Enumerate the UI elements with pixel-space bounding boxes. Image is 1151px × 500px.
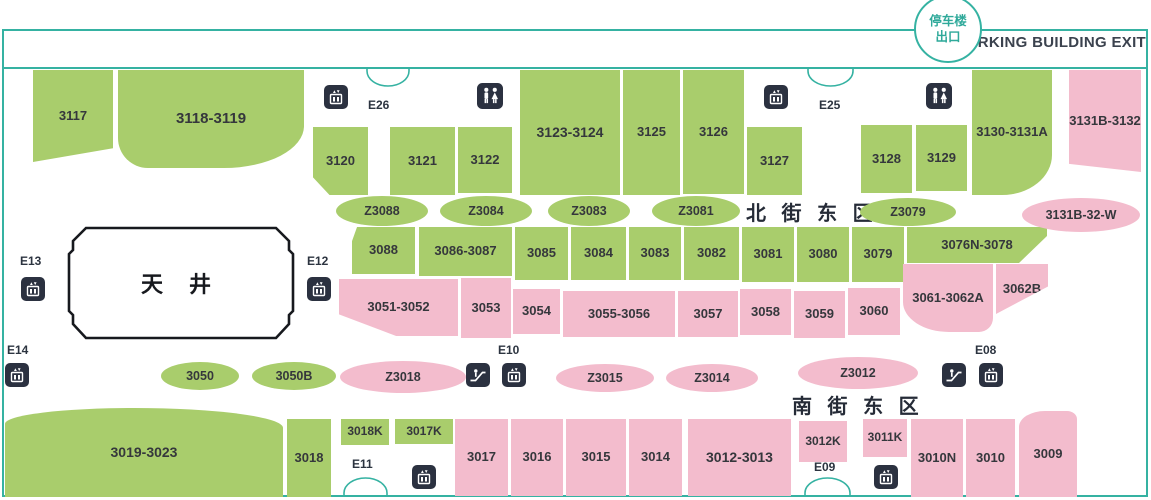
shop-3058: 3058 xyxy=(740,289,791,335)
exit-label-e10: E10 xyxy=(498,343,519,357)
district-label-north: 北 街 东 区 xyxy=(746,197,878,226)
shop-3126: 3126 xyxy=(683,70,744,194)
elevator-icon xyxy=(979,363,1003,387)
escalator-icon xyxy=(942,363,966,387)
wall-right xyxy=(1146,29,1148,497)
kiosk-z3014: Z3014 xyxy=(666,364,758,392)
exit-label-e13: E13 xyxy=(20,254,41,268)
shop-3061-3062a: 3061-3062A xyxy=(903,264,993,332)
shop-3130-3131a: 3130-3131A xyxy=(972,70,1052,195)
exit-label-e14: E14 xyxy=(7,343,28,357)
door-e26 xyxy=(366,67,410,88)
shop-3080: 3080 xyxy=(797,227,849,282)
kiosk-z3079: Z3079 xyxy=(860,198,956,226)
shop-3011k: 3011K xyxy=(863,419,907,457)
shop-3088: 3088 xyxy=(352,227,415,274)
kiosk-3050b: 3050B xyxy=(252,362,336,390)
shop-3127: 3127 xyxy=(747,127,802,195)
kiosk-z3081: Z3081 xyxy=(652,196,740,226)
shop-3016: 3016 xyxy=(511,419,563,496)
elevator-icon xyxy=(764,85,788,109)
shop-3014: 3014 xyxy=(629,419,682,496)
kiosk-z3015: Z3015 xyxy=(556,364,654,392)
wall-left xyxy=(2,29,4,497)
elevator-icon xyxy=(21,277,45,301)
shop-3079: 3079 xyxy=(852,227,904,282)
kiosk-3050: 3050 xyxy=(161,362,239,390)
shop-3017k: 3017K xyxy=(395,419,453,444)
shop-3082: 3082 xyxy=(684,227,739,280)
shop-3018k: 3018K xyxy=(341,419,389,445)
shop-3010n: 3010N xyxy=(911,419,963,497)
shop-3017: 3017 xyxy=(455,419,508,496)
shop-3120: 3120 xyxy=(313,127,368,195)
shop-3057: 3057 xyxy=(678,291,738,337)
elevator-icon xyxy=(5,363,29,387)
elevator-icon xyxy=(502,363,526,387)
exit-label-e25: E25 xyxy=(819,98,840,112)
shop-3131b-3132: 3131B-3132 xyxy=(1069,70,1141,172)
shop-3084: 3084 xyxy=(571,227,626,280)
door-e25 xyxy=(807,67,854,88)
shop-3012-3013: 3012-3013 xyxy=(688,419,791,496)
exit-label-e26: E26 xyxy=(368,98,389,112)
exit-label-e09: E09 xyxy=(814,460,835,474)
shop-3054: 3054 xyxy=(513,289,560,334)
elevator-icon xyxy=(324,85,348,109)
district-label-south: 南 街 东 区 xyxy=(792,390,924,419)
kiosk-3131b-32-w: 3131B-32-W xyxy=(1022,198,1140,232)
shop-3018: 3018 xyxy=(287,419,331,497)
shop-3060: 3060 xyxy=(848,288,900,335)
atrium-label: 天 井 xyxy=(70,227,292,339)
exit-label-e11: E11 xyxy=(352,457,373,471)
shop-3012k: 3012K xyxy=(799,421,847,462)
kiosk-z3083: Z3083 xyxy=(548,196,630,226)
kiosk-z3088: Z3088 xyxy=(336,196,428,226)
elevator-icon xyxy=(412,465,436,489)
shop-3009: 3009 xyxy=(1019,411,1077,497)
kiosk-z3012: Z3012 xyxy=(798,357,918,389)
shop-3010: 3010 xyxy=(966,419,1015,497)
exit-label-e12: E12 xyxy=(307,254,328,268)
shop-3062b: 3062B xyxy=(996,264,1048,314)
restroom-icon xyxy=(477,83,503,109)
shop-3059: 3059 xyxy=(794,291,845,338)
door-e09 xyxy=(804,476,851,497)
shop-3123-3124: 3123-3124 xyxy=(520,70,620,195)
shop-3076n-3078: 3076N-3078 xyxy=(907,227,1047,263)
shop-3121: 3121 xyxy=(390,127,455,195)
escalator-icon xyxy=(466,363,490,387)
shop-3019-3023: 3019-3023 xyxy=(5,408,283,497)
parking-exit-badge-line1: 停车楼 xyxy=(929,13,967,29)
exit-label-e08: E08 xyxy=(975,343,996,357)
shop-3053: 3053 xyxy=(461,278,511,338)
shop-3083: 3083 xyxy=(629,227,681,280)
shop-3055-3056: 3055-3056 xyxy=(563,291,675,337)
parking-exit-label: PARKING BUILDING EXIT xyxy=(957,34,1146,51)
elevator-icon xyxy=(307,277,331,301)
shop-3086-3087: 3086-3087 xyxy=(419,227,512,276)
shop-3118-3119: 3118-3119 xyxy=(118,70,304,168)
wall-corridor xyxy=(2,67,1148,69)
shop-3085: 3085 xyxy=(515,227,568,280)
parking-exit-badge: 停车楼 出口 xyxy=(914,0,982,63)
shop-3015: 3015 xyxy=(566,419,626,496)
restroom-icon xyxy=(926,83,952,109)
shop-3117: 3117 xyxy=(33,70,113,162)
shop-3122: 3122 xyxy=(458,127,512,193)
door-e11 xyxy=(343,476,388,497)
kiosk-z3084: Z3084 xyxy=(440,196,532,226)
shop-3129: 3129 xyxy=(916,125,967,191)
shop-3128: 3128 xyxy=(861,125,912,193)
kiosk-z3018: Z3018 xyxy=(340,361,466,393)
parking-exit-badge-line2: 出口 xyxy=(935,29,960,45)
shop-3081: 3081 xyxy=(742,227,794,282)
shop-3051-3052: 3051-3052 xyxy=(339,279,458,336)
shop-3125: 3125 xyxy=(623,70,680,195)
elevator-icon xyxy=(874,465,898,489)
floor-plan: 停车楼 出口 PARKING BUILDING EXIT 天 井 北 街 东 区… xyxy=(0,0,1151,500)
